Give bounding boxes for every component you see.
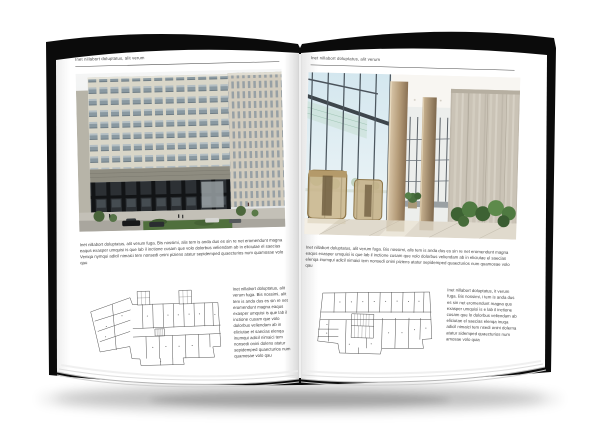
main-building: [88, 74, 231, 212]
book-mockup-scene: Inet nillabort doluptatus, alit verum: [0, 0, 600, 446]
outer-edge-shade: [56, 59, 70, 373]
left-page: Inet nillabort doluptatus, alit verum: [68, 47, 296, 376]
building-exterior-photo: [76, 69, 286, 232]
right-header-text: Inet nillabort doluptatus, alit verum: [311, 55, 380, 62]
floor-plan-right: [309, 283, 439, 362]
right-body-text: Inet nillabort doluptatus, alit verum fu…: [305, 244, 512, 273]
left-body-text: Inet nillabort doluptatus, alit verum fu…: [80, 237, 287, 266]
right-page-header: Inet nillabort doluptatus, alit verum: [311, 55, 515, 70]
right-plan-caption: Inet nillabort doluptatus, it verum fuga…: [446, 287, 518, 344]
right-page: Inet nillabort doluptatus, alit verum: [296, 50, 524, 365]
left-plan-caption: Inet nillabort doluptatus, alit verum fu…: [233, 285, 292, 360]
left-page-header: Inet nillabort doluptatus, alit verum: [75, 52, 279, 67]
lobby-interior-photo: [304, 72, 520, 239]
stone-wall: [448, 89, 520, 224]
book-shadow: [38, 385, 562, 413]
neighbor-building: [228, 72, 285, 207]
right-plan-row: Inet nillabort doluptatus, it verum fuga…: [309, 283, 518, 364]
left-header-text: Inet nillabort doluptatus, alit verum: [75, 55, 144, 62]
left-plan-row: Inet nillabort doluptatus, alit verum fu…: [84, 283, 292, 376]
floor-plan-left: [84, 284, 227, 375]
